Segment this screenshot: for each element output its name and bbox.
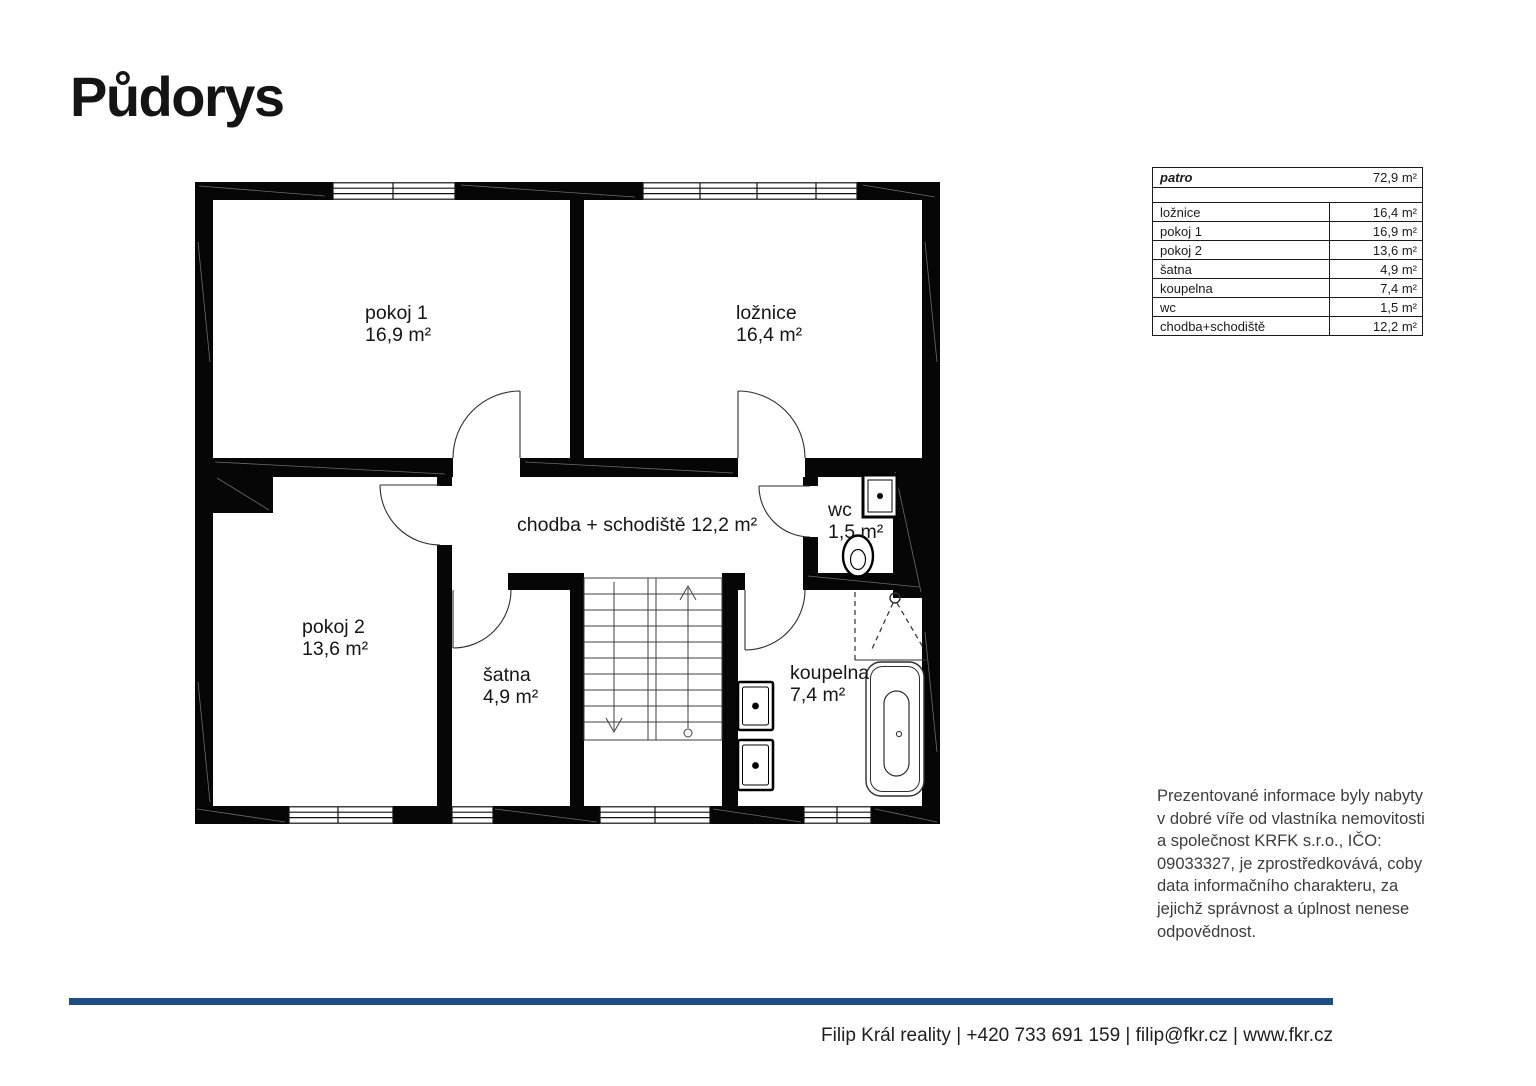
page-title: Půdorys [70, 64, 284, 129]
staircase [584, 578, 722, 740]
row-name: chodba+schodiště [1153, 317, 1330, 335]
bathtub-icon [866, 662, 924, 796]
disclaimer-line: jejichž správnost a úplnost nenese [1157, 898, 1457, 921]
room-name: pokoj 2 [302, 616, 368, 638]
room-label-pokoj1: pokoj 1 16,9 m² [365, 302, 431, 346]
room-name: pokoj 1 [365, 302, 431, 324]
room-area: 4,9 m² [483, 686, 538, 708]
row-value: 7,4 m² [1330, 279, 1422, 297]
table-row: chodba+schodiště 12,2 m² [1153, 317, 1422, 335]
sink-icon [738, 740, 773, 790]
door-pokoj1 [453, 391, 520, 458]
table-header-value: 72,9 m² [1373, 170, 1417, 185]
disclaimer-line: Prezentované informace byly nabyty [1157, 785, 1457, 808]
room-area: 7,4 m² [790, 684, 869, 706]
room-name: šatna [483, 664, 538, 686]
room-name: ložnice [736, 302, 802, 324]
door-koupelna [745, 590, 805, 650]
room-label-satna: šatna 4,9 m² [483, 664, 538, 708]
room-label-koupelna: koupelna 7,4 m² [790, 662, 869, 706]
footer-contact-info: Filip Král reality | +420 733 691 159 | … [633, 1025, 1333, 1047]
room-label-wc: wc 1,5 m² [828, 499, 883, 543]
table-row: koupelna 7,4 m² [1153, 279, 1422, 298]
room-area: 16,4 m² [736, 324, 802, 346]
disclaimer-line: 09033327, je zprostředkovává, coby [1157, 853, 1457, 876]
row-value: 4,9 m² [1330, 260, 1422, 278]
disclaimer-line: v dobré víře od vlastníka nemovitosti [1157, 808, 1457, 831]
door-pokoj2 [380, 485, 440, 545]
page: Půdorys [0, 0, 1536, 1086]
table-header-row: patro 72,9 m² [1153, 168, 1422, 188]
row-name: pokoj 1 [1153, 222, 1330, 240]
row-value: 13,6 m² [1330, 241, 1422, 259]
door-loznice [738, 391, 805, 458]
table-row: ložnice 16,4 m² [1153, 203, 1422, 222]
room-name: koupelna [790, 662, 869, 684]
row-value: 12,2 m² [1330, 317, 1422, 335]
wall-hatching [197, 185, 937, 822]
disclaimer-line: odpovědnost. [1157, 921, 1457, 944]
disclaimer-line: a společnost KRFK s.r.o., IČO: [1157, 830, 1457, 853]
row-name: šatna [1153, 260, 1330, 278]
room-name: chodba + schodiště 12,2 m² [517, 514, 757, 536]
footer-accent-bar [69, 998, 1333, 1005]
sink-icon [738, 682, 773, 730]
room-area: 13,6 m² [302, 638, 368, 660]
table-spacer-row [1153, 188, 1422, 203]
row-name: wc [1153, 298, 1330, 316]
table-row: wc 1,5 m² [1153, 298, 1422, 317]
room-label-pokoj2: pokoj 2 13,6 m² [302, 616, 368, 660]
row-name: koupelna [1153, 279, 1330, 297]
room-label-loznice: ložnice 16,4 m² [736, 302, 802, 346]
row-value: 16,9 m² [1330, 222, 1422, 240]
room-area: 1,5 m² [828, 521, 883, 543]
table-row: pokoj 2 13,6 m² [1153, 241, 1422, 260]
table-row: šatna 4,9 m² [1153, 260, 1422, 279]
row-value: 16,4 m² [1330, 203, 1422, 221]
door-satna [453, 590, 511, 648]
table-header-name: patro [1160, 170, 1193, 185]
area-table: patro 72,9 m² ložnice 16,4 m² pokoj 1 16… [1152, 167, 1423, 336]
room-label-chodba: chodba + schodiště 12,2 m² [517, 514, 757, 536]
disclaimer-text: Prezentované informace byly nabyty v dob… [1157, 785, 1457, 943]
disclaimer-line: data informačního charakteru, za [1157, 875, 1457, 898]
room-area: 16,9 m² [365, 324, 431, 346]
row-value: 1,5 m² [1330, 298, 1422, 316]
shower-icon [855, 592, 927, 660]
row-name: pokoj 2 [1153, 241, 1330, 259]
table-row: pokoj 1 16,9 m² [1153, 222, 1422, 241]
row-name: ložnice [1153, 203, 1330, 221]
door-wc [759, 486, 810, 537]
room-name: wc [828, 499, 883, 521]
